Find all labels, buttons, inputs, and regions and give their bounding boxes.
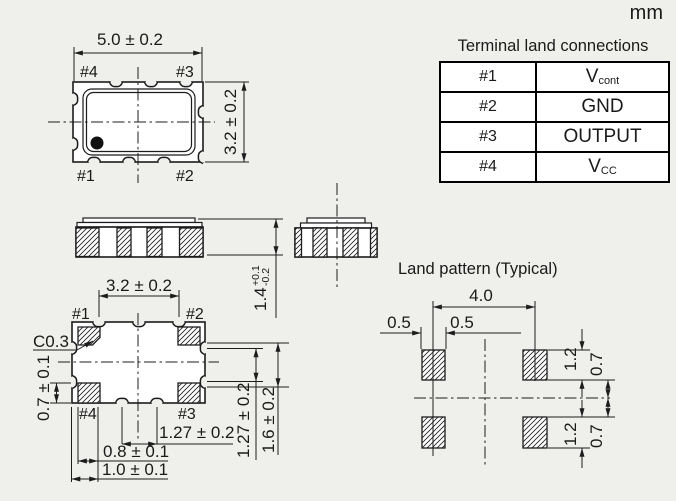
dim-label-land-half-left: 0.5 [387,313,411,332]
pin-label: #3 [176,64,194,81]
dim-label-front-tol-minus: -0.2 [260,268,272,286]
dim-label-land-half-right: 0.5 [450,313,474,332]
dim-bottom-pad-height [50,383,71,403]
dim-label-bottom-pad-width: 0.8 ± 0.1 [103,442,169,461]
front-terminal [147,228,162,257]
pin-label: #2 [176,168,194,185]
land-pad [523,417,547,448]
dim-label-bottom-pad-height: 0.7 ± 0.1 [34,355,53,421]
side-lid [307,218,365,223]
front-view-body [76,218,203,257]
dim-label-bottom-pitch: 1.27 ± 0.2 [159,423,235,442]
side-view-body [295,218,377,257]
side-body [295,228,377,257]
dim-label-land-pad-height-top: 1.2 [561,347,580,371]
pin-label: #3 [178,406,196,423]
dim-label-land-pad-height-bottom: 1.2 [561,422,580,446]
dim-label-land-gap-bottom: 0.7 [587,424,606,448]
side-terminal [343,228,358,257]
front-terminal [180,228,204,257]
dim-land-pitch [433,301,535,456]
side-edge-castellation [295,228,302,257]
side-edge-castellation [371,228,378,257]
dim-label-right-edge: 1.6 ± 0.2 [259,387,278,453]
dim-label-right-pitch: 1.27 ± 0.2 [234,383,253,459]
pin-label: #1 [77,168,95,185]
pin-label: #1 [72,306,90,323]
pin-label: #2 [186,306,204,323]
bottom-pad-2 [178,327,200,345]
dim-label-bottom-corner-pad: 1.0 ± 0.1 [102,460,168,479]
front-terminal [76,228,99,257]
front-lid [83,218,195,223]
dim-label-bottom-width: 3.2 ± 0.2 [106,276,172,295]
bottom-pad-4 [78,383,100,403]
pin1-dot [91,137,104,150]
pin-label: #4 [80,64,98,81]
side-terminal [313,228,327,257]
dim-label-front-height: 1.4 [251,287,270,311]
chamfer-label: C0.3 [33,332,69,351]
bottom-pad-3 [178,383,200,403]
front-terminal [117,228,131,257]
dim-label-top-height: 3.2 ± 0.2 [221,89,240,155]
dim-label-land-gap-top: 0.7 [587,352,606,376]
solid-geometry [72,82,547,448]
pin-label: #4 [79,406,97,423]
dim-label-top-width: 5.0 ± 0.2 [97,30,163,49]
dim-label-land-pitch: 4.0 [469,286,493,305]
package-drawing: 5.0 ± 0.2 3.2 ± 0.2 #4 #3 #1 #2 1.4 +0.1… [0,0,676,501]
